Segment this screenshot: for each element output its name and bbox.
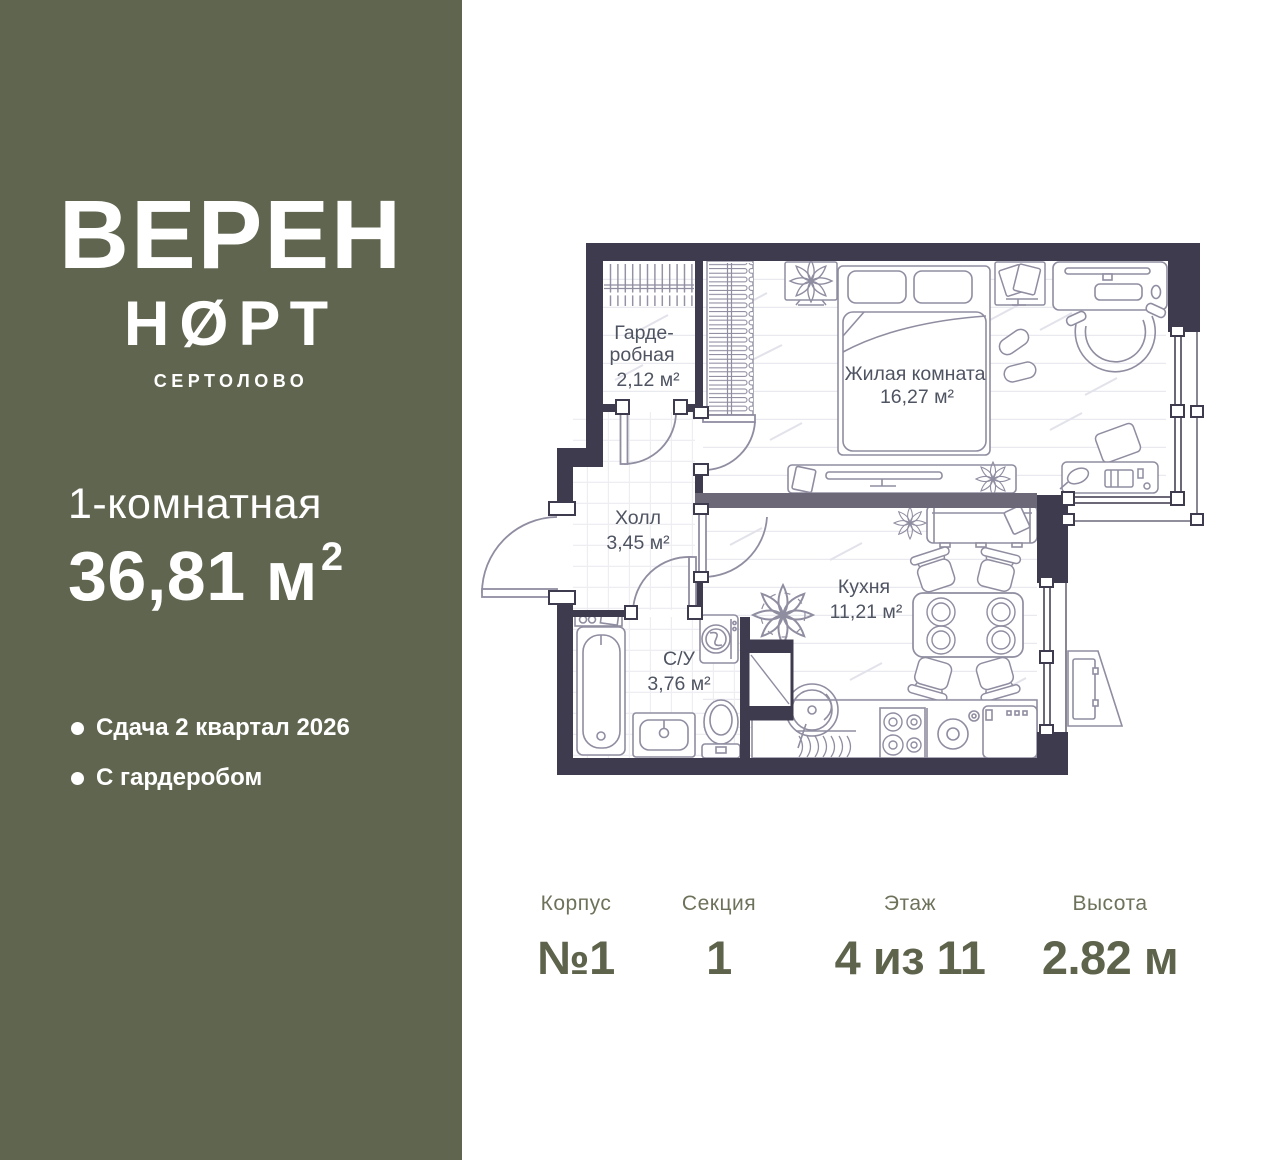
- vent-shaft: [748, 641, 792, 719]
- info-column-section: Секция 1: [682, 892, 756, 985]
- info-label: Корпус: [537, 892, 615, 916]
- info-column-building: Корпус №1: [537, 892, 615, 985]
- feature-text: Сдача 2 квартал 2026: [96, 714, 350, 742]
- total-area-sup: 2: [321, 535, 344, 579]
- logo-location: СЕРТОЛОВО: [0, 371, 462, 392]
- kitchen-door-leaf: [699, 513, 706, 577]
- partition-living-kitchen: [695, 493, 1037, 508]
- bathtub: [575, 613, 625, 755]
- room-type-label: 1-комнатная: [68, 480, 322, 529]
- wardrobe-door-leaf: [621, 412, 628, 464]
- washing-machine: [700, 615, 738, 663]
- entrance-door-leaf: [482, 589, 557, 597]
- feature-text: С гардеробом: [96, 764, 262, 792]
- room-area-wardrobe: 2,12 м²: [616, 369, 680, 391]
- info-value: 4 из 11: [835, 930, 986, 985]
- entrance-door-arc: [482, 517, 557, 593]
- room-area-bathroom: 3,76 м²: [647, 673, 711, 695]
- room-area-living: 16,27 м²: [880, 386, 955, 408]
- bullet-dot-icon: [71, 722, 84, 735]
- sidebar: ВЕРЕН НØРТ СЕРТОЛОВО 1-комнатная 36,81 м…: [0, 0, 462, 1160]
- closet-strip: [707, 261, 753, 418]
- logo-line-2: НØРТ: [0, 293, 462, 356]
- bathroom-sink: [633, 713, 695, 757]
- feature-item: С гардеробом: [71, 764, 262, 792]
- info-value: 1: [682, 930, 756, 985]
- info-column-floor: Этаж 4 из 11: [835, 892, 986, 985]
- info-label: Секция: [682, 892, 756, 916]
- room-area-kitchen: 11,21 м²: [830, 601, 903, 623]
- bed: [838, 266, 990, 455]
- kitchen-sofa: [927, 505, 1037, 547]
- room-label-wardrobe-line2: робная: [609, 344, 674, 366]
- toilet: [702, 700, 740, 758]
- floor-plan: Гарде- робная 2,12 м² Холл 3,45 м² С/У 3…: [440, 230, 1280, 800]
- small-desk-with-papers: [995, 262, 1045, 305]
- bathroom-door-leaf: [689, 557, 696, 610]
- room-label-kitchen: Кухня: [838, 576, 890, 598]
- bullet-dot-icon: [71, 772, 84, 785]
- info-value: №1: [537, 930, 615, 985]
- room-label-wardrobe-line1: Гарде-: [614, 322, 673, 344]
- room-label-living: Жилая комната: [845, 363, 986, 385]
- info-label: Этаж: [835, 892, 986, 916]
- total-area-value: 36,81 м: [68, 537, 318, 615]
- info-label: Высота: [1042, 892, 1178, 916]
- room-label-bathroom: С/У: [663, 648, 696, 670]
- info-value: 2.82 м: [1042, 930, 1178, 985]
- wardrobe-hangers: [604, 264, 694, 306]
- logo-line-1: ВЕРЕН: [0, 186, 462, 283]
- room-area-hall: 3,45 м²: [606, 532, 670, 554]
- open-window-sash: [1068, 651, 1122, 726]
- feature-item: Сдача 2 квартал 2026: [71, 714, 350, 742]
- total-area: 36,81 м2: [68, 536, 341, 616]
- living-door-leaf: [703, 415, 755, 422]
- info-column-height: Высота 2.82 м: [1042, 892, 1178, 985]
- room-label-hall: Холл: [615, 507, 661, 529]
